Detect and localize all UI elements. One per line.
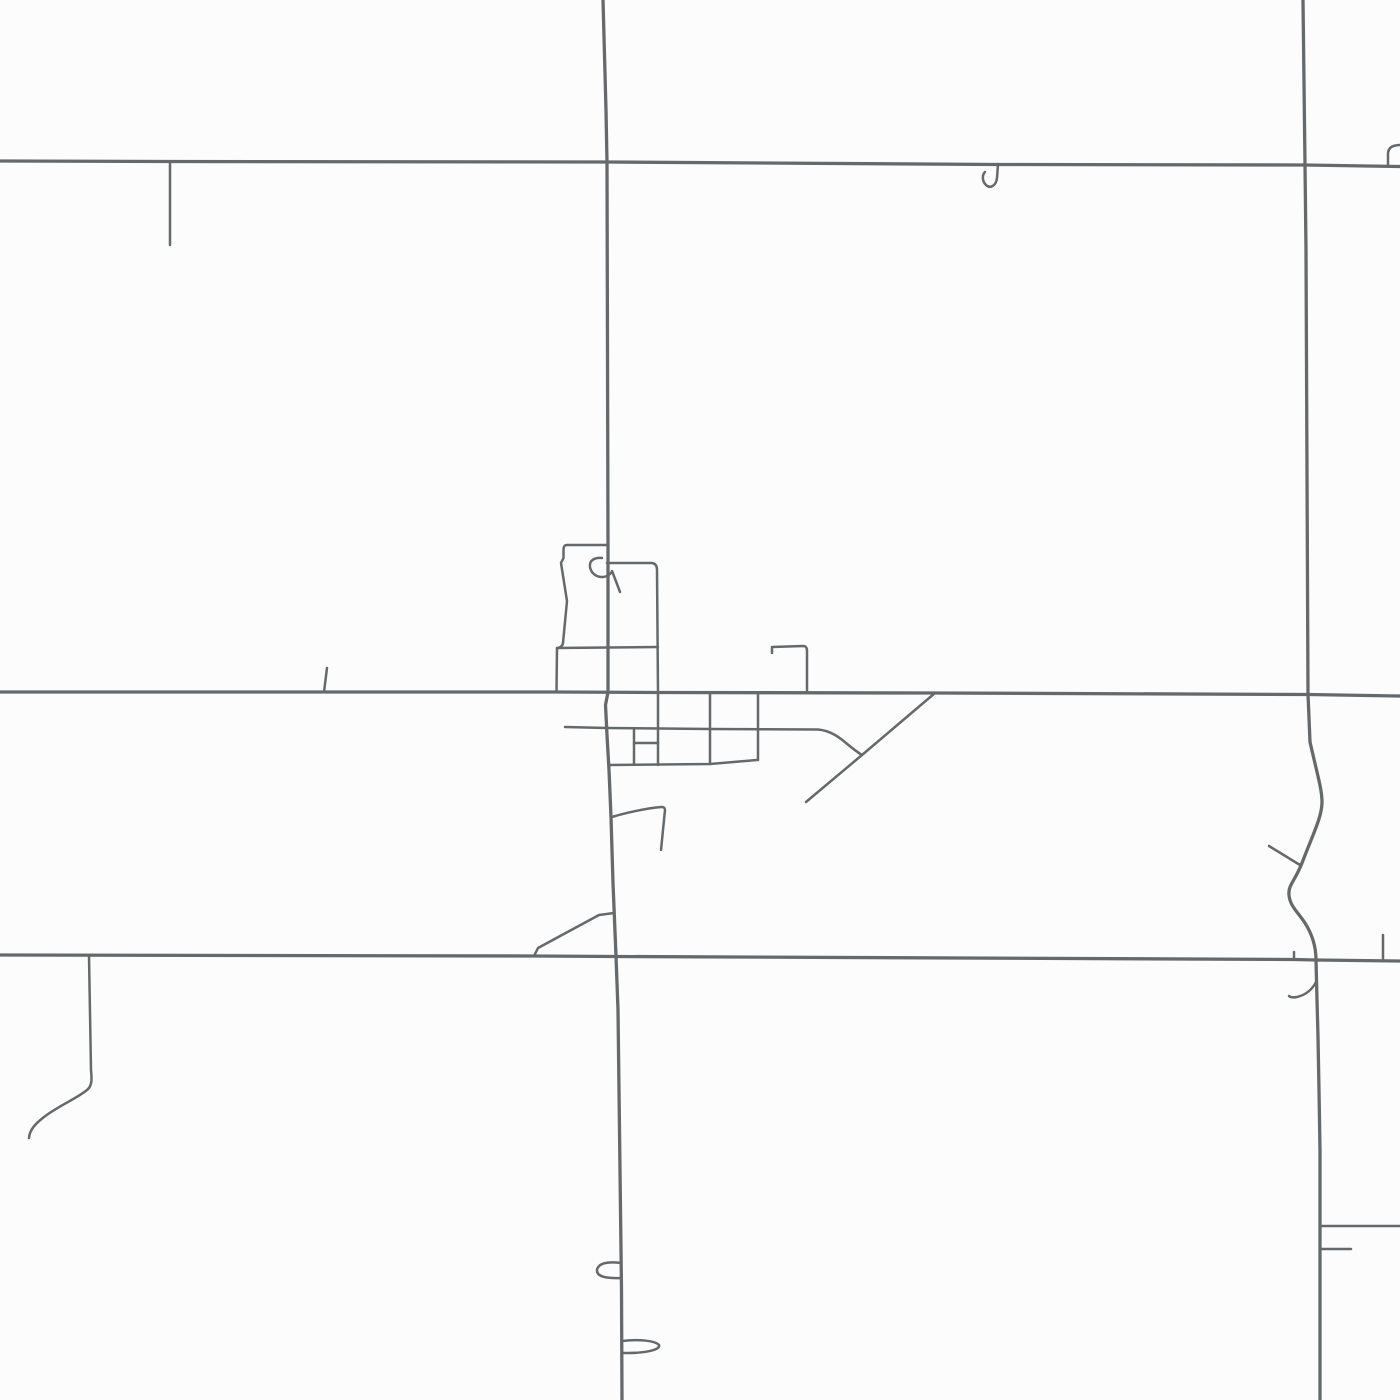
map-background	[0, 0, 1400, 1400]
town-cross-street	[557, 647, 658, 648]
map-viewport	[0, 0, 1400, 1400]
road-network-map	[0, 0, 1400, 1400]
